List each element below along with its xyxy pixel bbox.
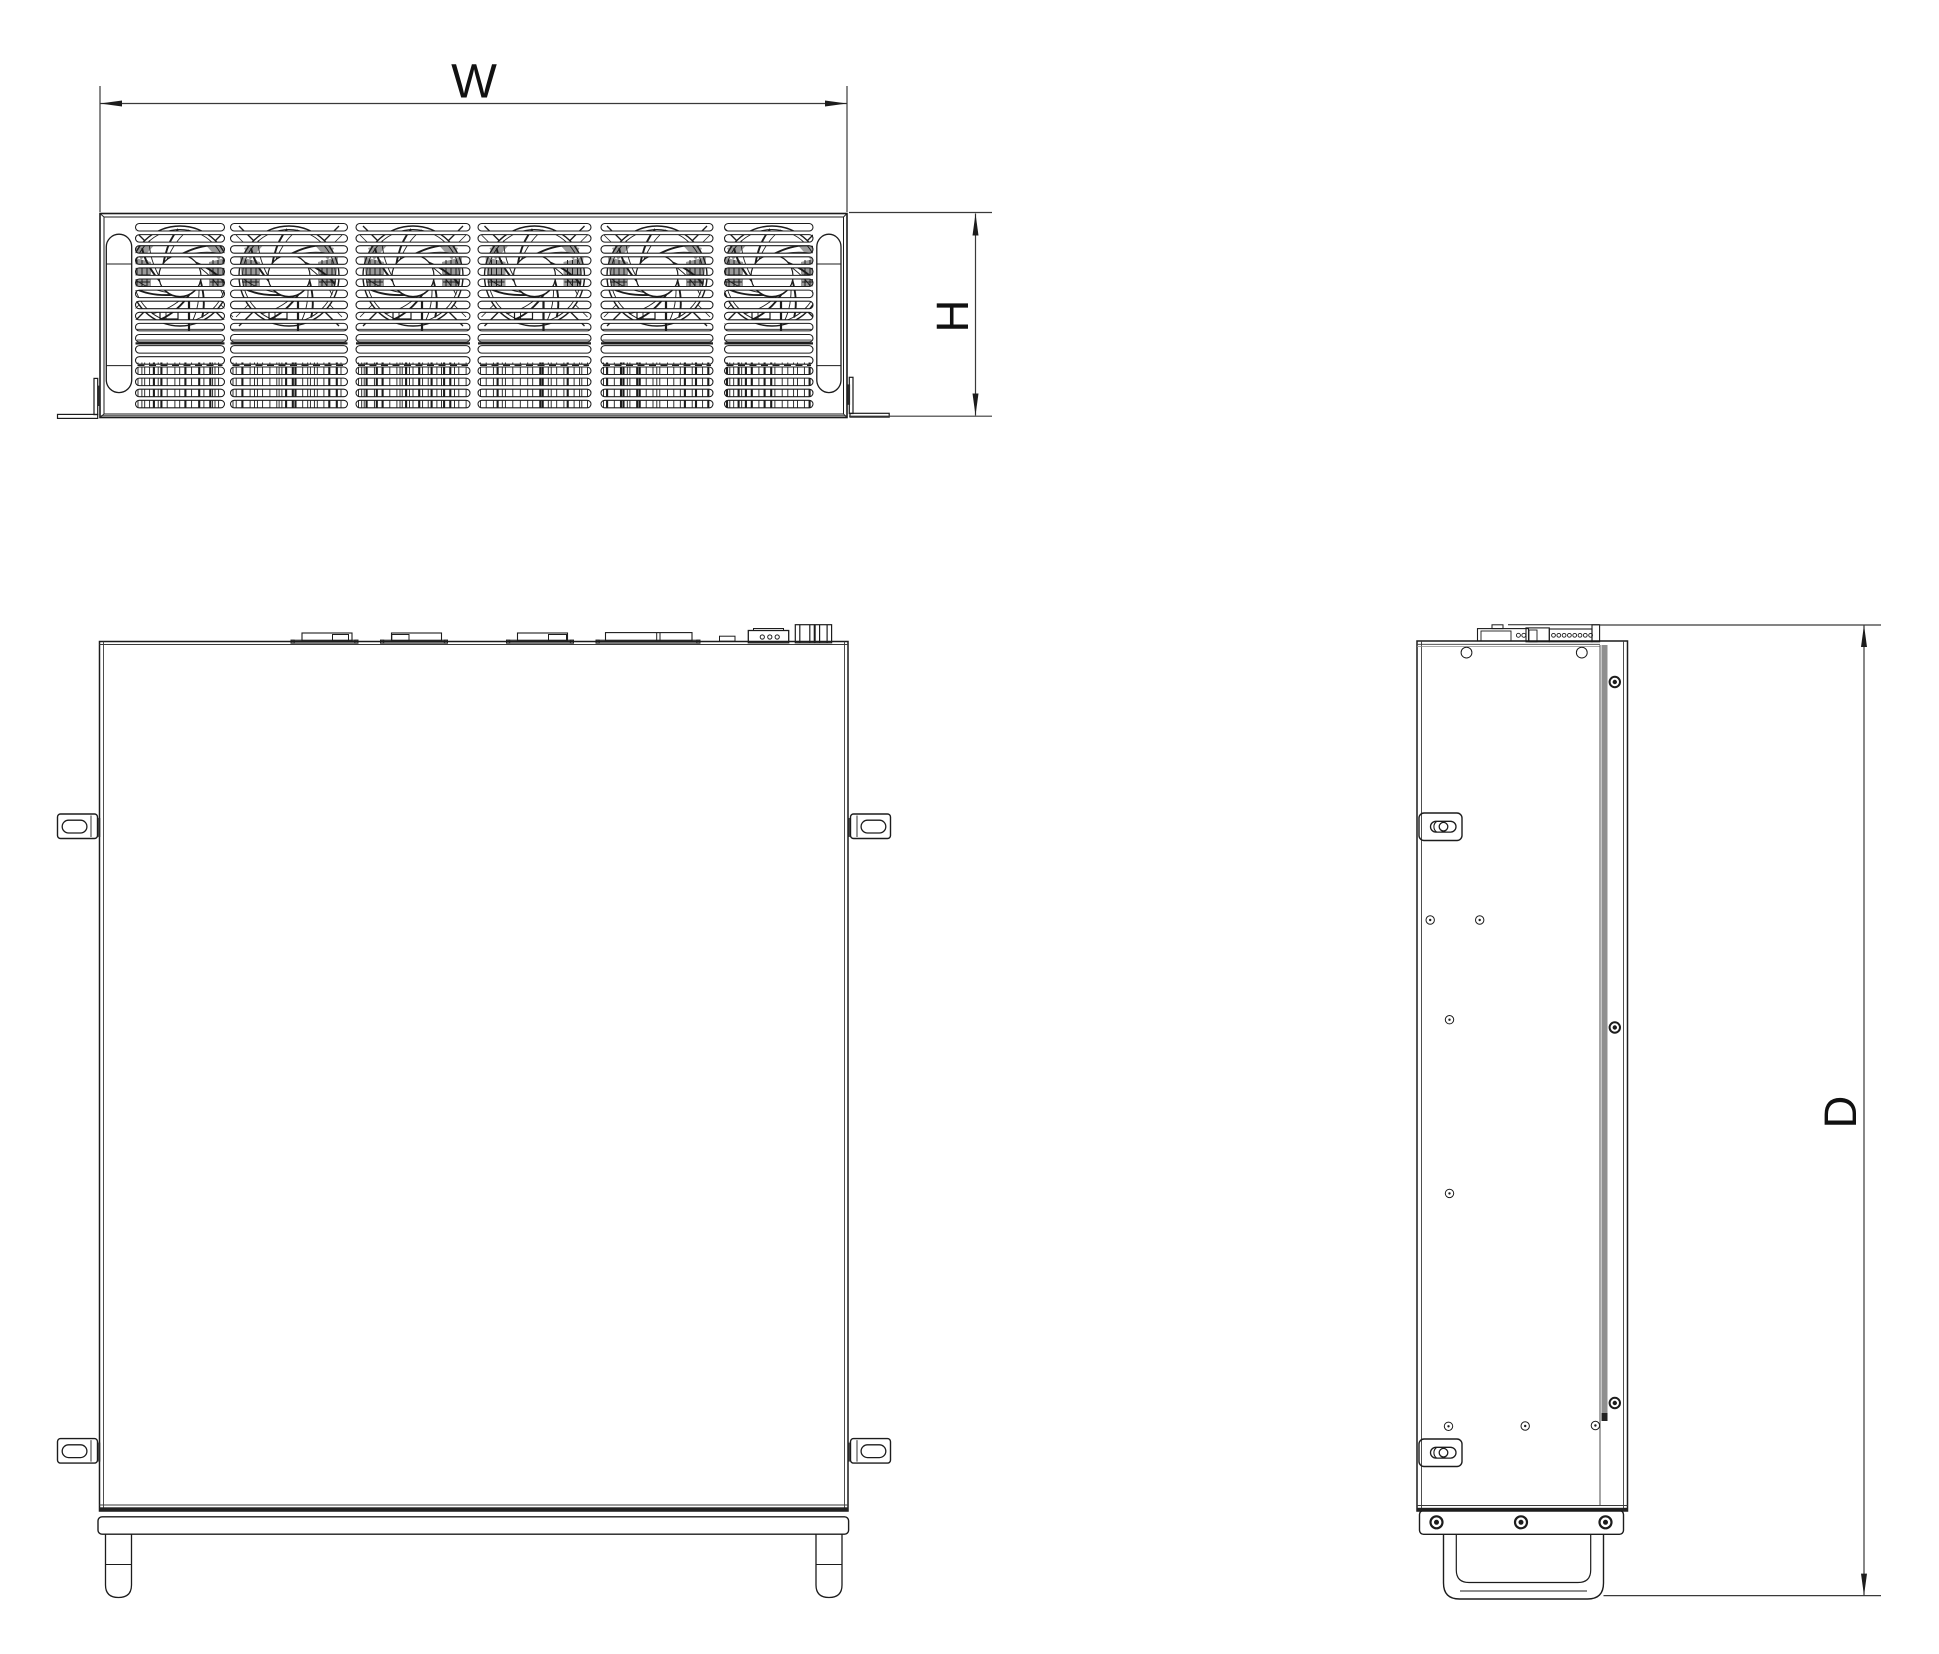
svg-text:H: H xyxy=(927,300,978,333)
svg-text:D: D xyxy=(1815,1096,1866,1129)
svg-text:W: W xyxy=(451,55,497,109)
